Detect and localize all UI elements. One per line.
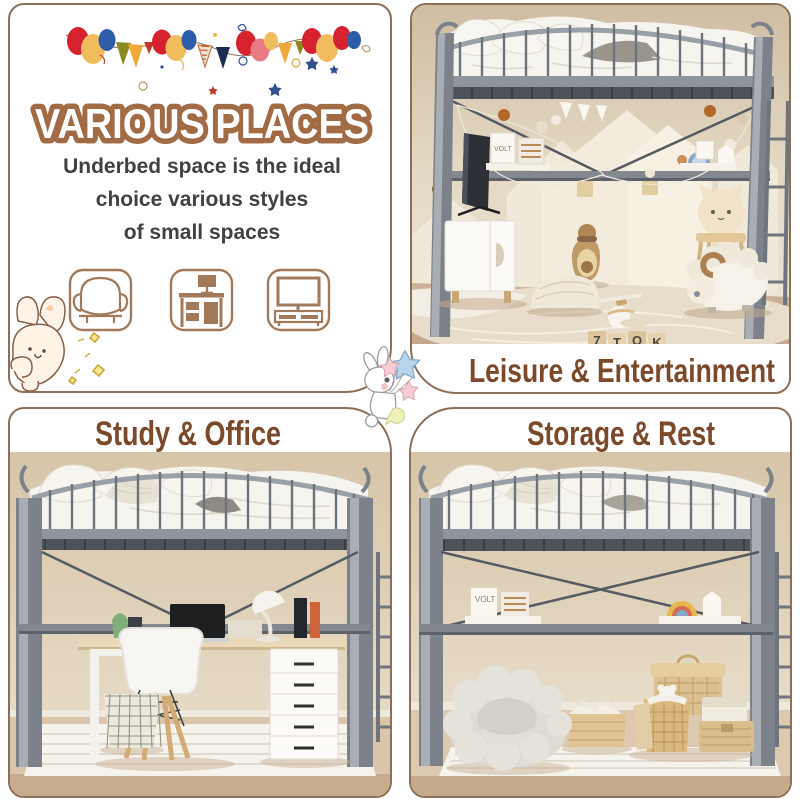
- svg-text:VARIOUS PLACES: VARIOUS PLACES: [35, 100, 369, 147]
- svg-text:K: K: [652, 335, 662, 344]
- svg-text:Leisure & Entertainment: Leisure & Entertainment: [469, 352, 775, 389]
- svg-text:O: O: [632, 333, 642, 344]
- svg-text:VOLT: VOLT: [475, 595, 495, 604]
- svg-text:7: 7: [593, 333, 600, 344]
- svg-text:T: T: [613, 335, 621, 344]
- svg-text:Study & Office: Study & Office: [95, 415, 281, 453]
- svg-text:VOLT: VOLT: [494, 146, 512, 153]
- svg-text:Storage & Rest: Storage & Rest: [527, 415, 715, 453]
